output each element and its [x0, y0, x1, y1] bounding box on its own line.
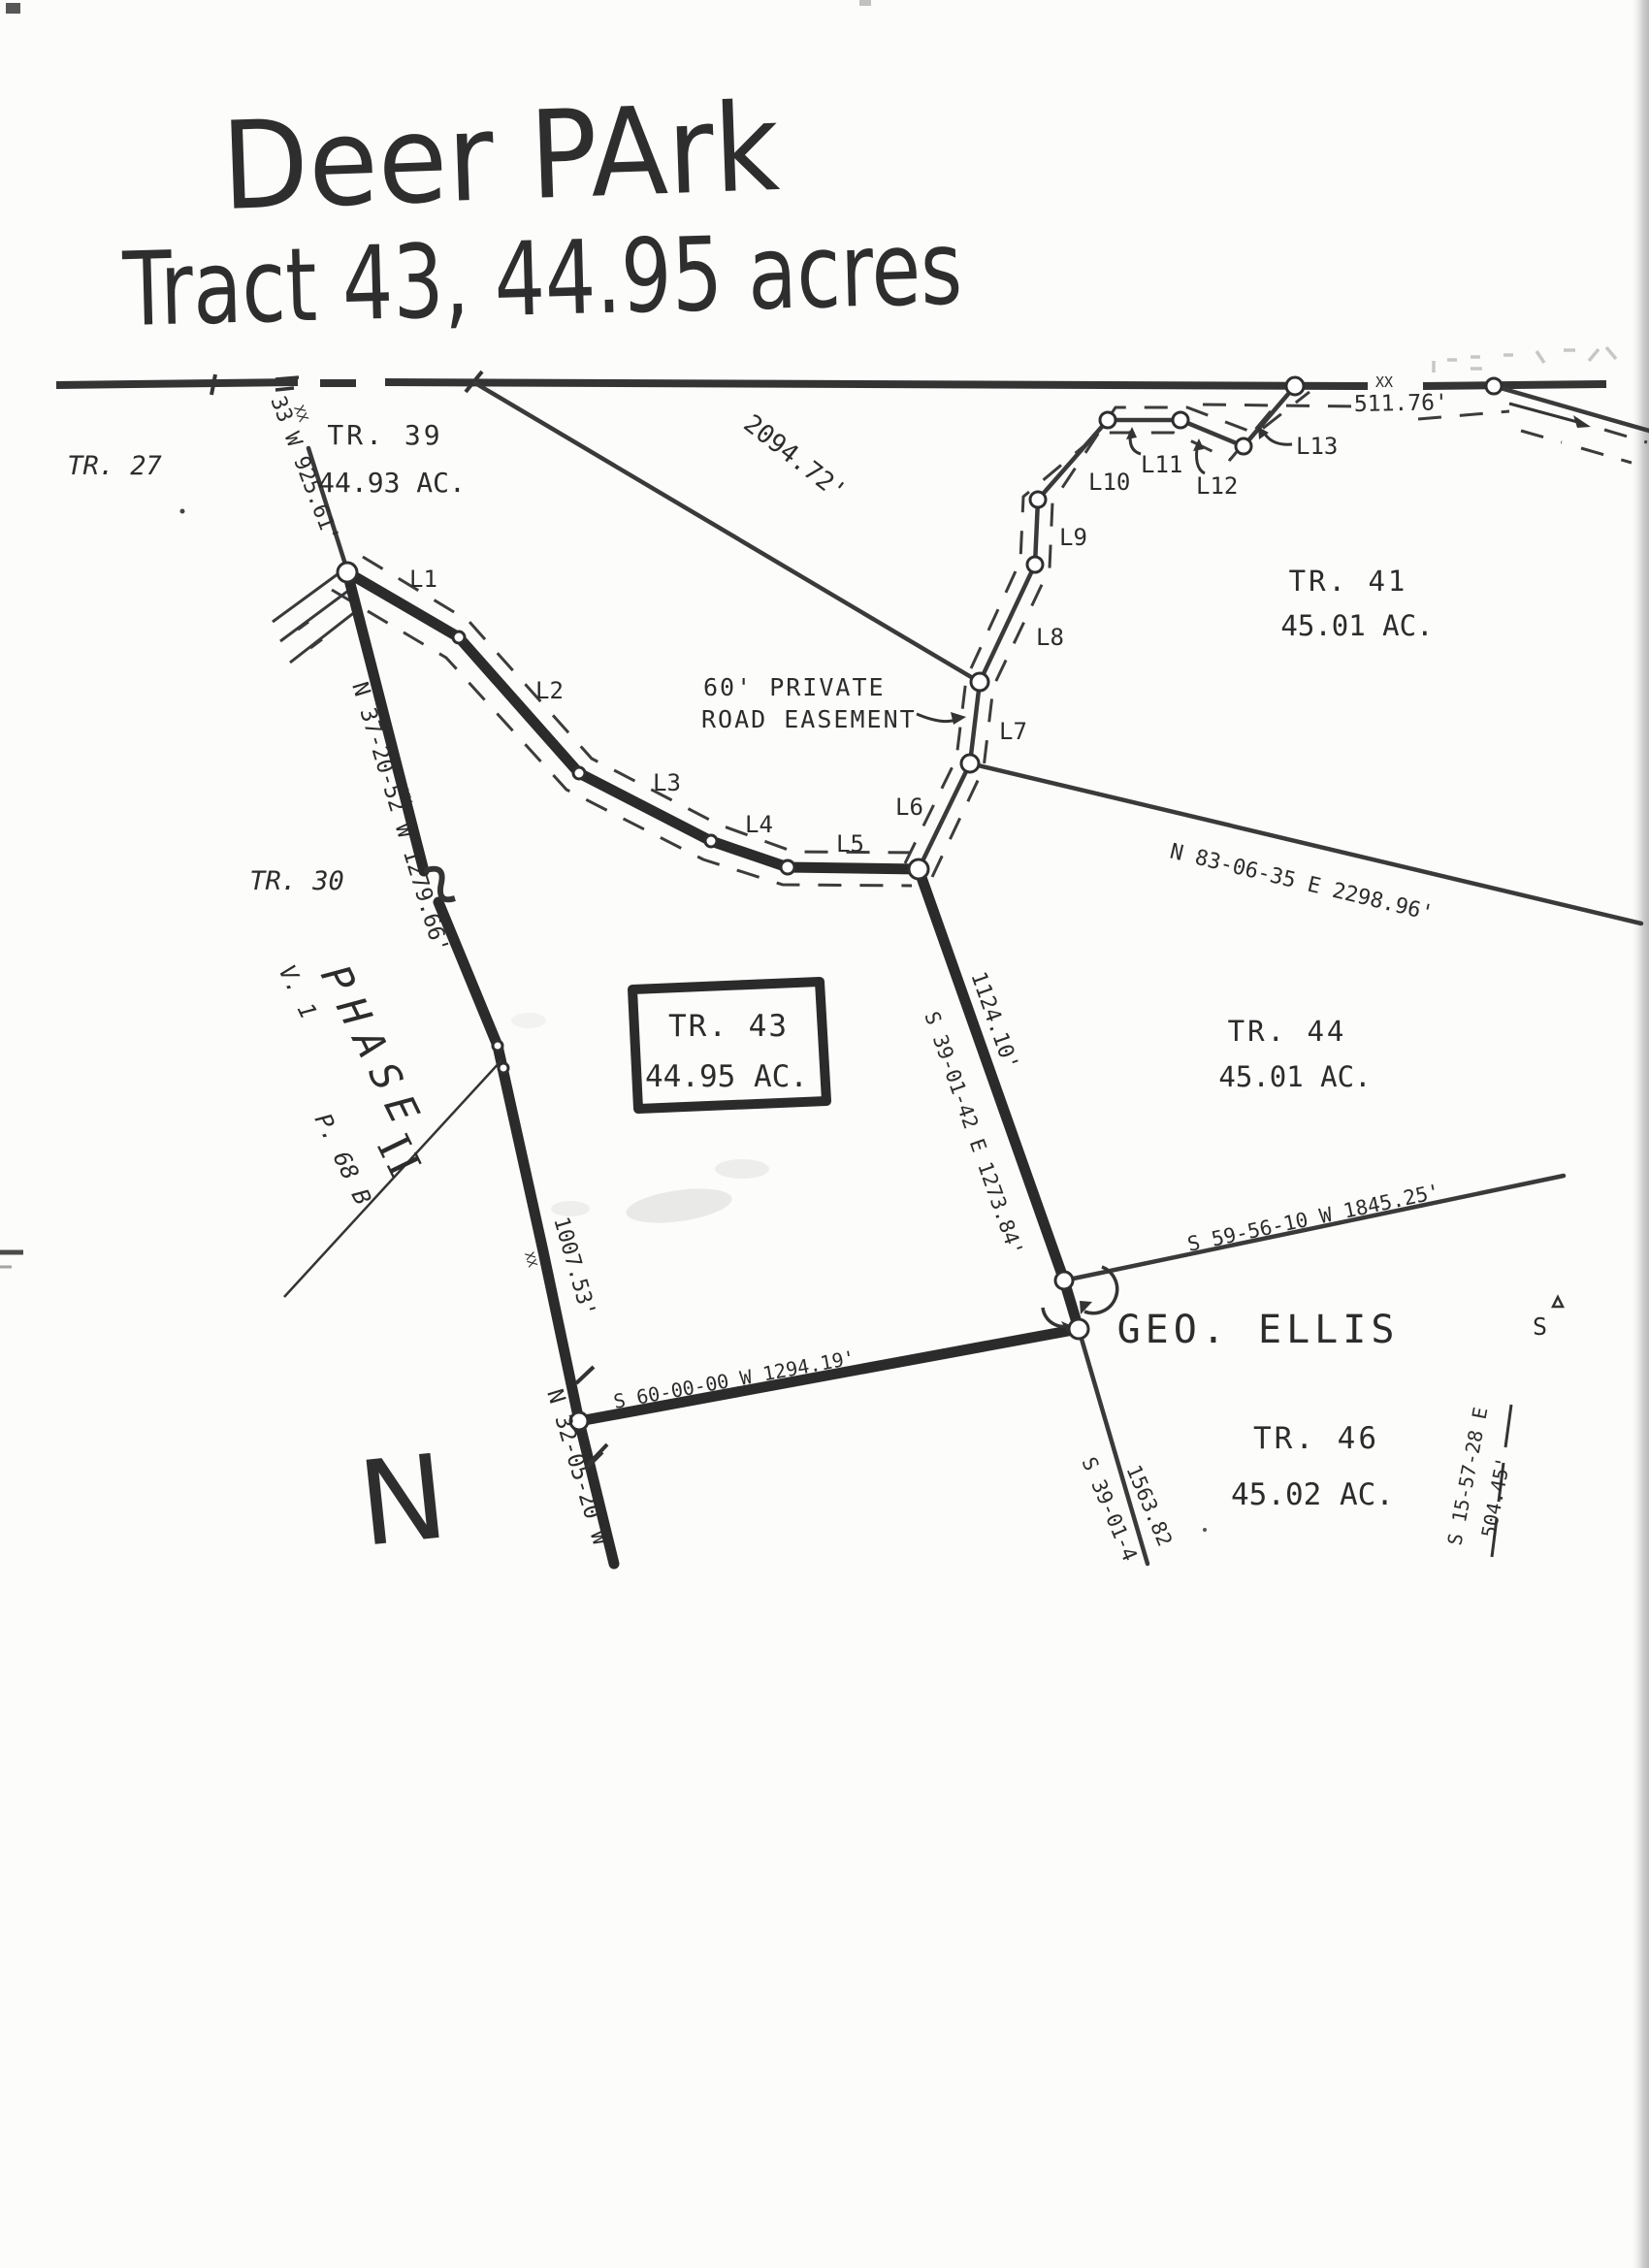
bearing-n83: N 83-06-35 E 2298.96': [1168, 840, 1436, 926]
owner-name: GEO. ELLIS: [1117, 1308, 1400, 1352]
edge-fragment: S: [1533, 1297, 1563, 1341]
north-arrow: N: [353, 1430, 454, 1573]
segment-label-L9: L9: [1059, 524, 1087, 551]
phase-annotation: PHASE II V. 1 P. 68 B: [274, 957, 434, 1210]
segment-label-L10: L10: [1088, 469, 1130, 496]
segment-label-L4: L4: [745, 811, 773, 838]
tract41-acreage: 45.01 AC.: [1280, 609, 1433, 642]
segment-label-L6: L6: [895, 794, 923, 821]
tract44-acreage: 45.01 AC.: [1218, 1060, 1371, 1093]
easement-dashed-corridor: [332, 392, 1647, 886]
easement-note-line2: ROAD EASEMENT: [701, 705, 917, 733]
xx-top-right: XX: [1375, 373, 1393, 391]
tract43-label-box: TR. 43 44.95 AC.: [632, 982, 826, 1109]
segment-label-L3: L3: [653, 769, 681, 796]
tract41-label: TR. 41: [1289, 565, 1408, 598]
xx-1007: XX: [521, 1250, 539, 1269]
segment-label-L13: L13: [1296, 433, 1338, 460]
bearing-s59: S 59-56-10 W 1845.25': [1185, 1180, 1442, 1256]
easement-note-line1: 60' PRIVATE: [703, 673, 886, 701]
segment-label-L11: L11: [1141, 451, 1182, 478]
map-title-line1: Deer PArk: [219, 78, 782, 238]
tract46-acreage: 45.02 AC.: [1231, 1477, 1394, 1512]
boundary-tr39-diagonal: [475, 383, 978, 681]
survey-drawing: Deer PArk Tract 43, 44.95 acres TR. 27 T…: [0, 0, 1649, 2268]
phase-numeral: II: [367, 1126, 433, 1188]
tract43-acreage: 44.95 AC.: [645, 1059, 808, 1094]
tract46-label: TR. 46: [1253, 1421, 1379, 1456]
tract-division-lines: [284, 763, 1641, 1564]
tract39-acreage: 44.93 AC.: [318, 467, 466, 499]
segment-label-L12: L12: [1196, 472, 1238, 500]
segment-label-L5: L5: [836, 830, 864, 858]
easement-segment-labels: L1 L2 L3 L4 L5 L6 L7 L8 L9 L10 L11 L12 L…: [409, 433, 1338, 858]
road-line-northeast: [1494, 386, 1649, 431]
distance-504: 504.45': [1476, 1455, 1515, 1539]
segment-label-L2: L2: [535, 677, 564, 704]
bearing-top-diagonal: 2094.72': [738, 409, 852, 507]
survey-nodes: [338, 377, 1502, 1430]
tract43-label: TR. 43: [668, 1009, 789, 1044]
bearing-n37-west: N 37-20-52 W 1279.66': [346, 679, 453, 956]
tract44-label: TR. 44: [1228, 1015, 1347, 1048]
segment-label-L7: L7: [999, 718, 1027, 745]
map-title-line2: Tract 43, 44.95 acres: [121, 209, 964, 349]
distance-top-right: 511.76': [1354, 390, 1448, 417]
bearing-labels: 33 W 925.61' XX 2094.72' XX 511.76' N 83…: [265, 373, 1515, 1565]
plat-map-scan: Deer PArk Tract 43, 44.95 acres TR. 27 T…: [0, 0, 1649, 2268]
tract39-label: TR. 39: [327, 419, 442, 451]
segment-label-L8: L8: [1036, 624, 1064, 651]
tract27-label: TR. 27: [67, 451, 162, 481]
phase-volume: V. 1: [274, 960, 323, 1022]
faded-cut-text: [1434, 347, 1616, 373]
road-hatching: [273, 571, 356, 663]
phase-page: P. 68 B: [309, 1109, 377, 1209]
tract30-label: TR. 30: [249, 866, 344, 896]
segment-label-L1: L1: [409, 566, 437, 593]
svg-text:S: S: [1533, 1312, 1547, 1341]
